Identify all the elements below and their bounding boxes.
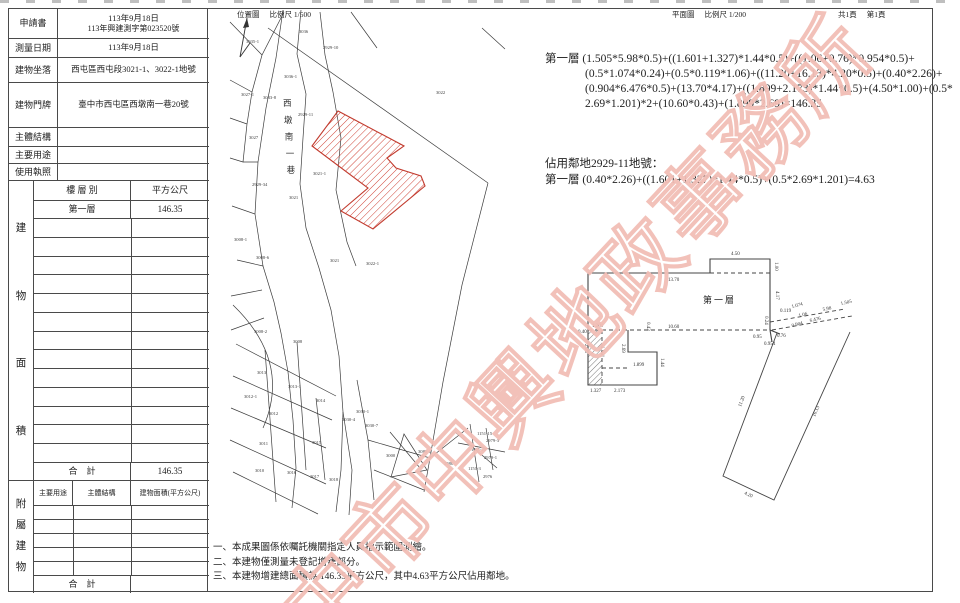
dimension-label: 0.40	[578, 330, 587, 335]
dimension-label: 0.76	[777, 334, 786, 339]
parcel-number: 3010	[255, 468, 265, 473]
parcel-number: 3035-1	[246, 39, 260, 44]
dimension-label: 13.70	[668, 278, 680, 283]
formula-line: (0.904*6.476*0.5)+(13.70*4.17)+((1.899+2…	[545, 82, 945, 97]
floor-plan-floor-label: 第一層	[703, 294, 736, 305]
parcel-number: 2979-1	[484, 455, 498, 460]
parcel-number: 1151-3	[468, 466, 482, 471]
dimension-label: 0.24	[763, 316, 768, 325]
parcel-number: 3008-1	[234, 237, 248, 242]
occupied-hatch-area	[588, 330, 602, 385]
parcel-number: 3013	[257, 370, 267, 375]
parcel-number: 3013-1	[288, 384, 302, 389]
parcel-numbers: 3035-130362929-103036-13027-13033-82929-…	[234, 29, 500, 482]
dimension-label: 2.173	[614, 389, 626, 394]
dimension-label: 0.954	[764, 342, 776, 347]
street-name-char: 巷	[287, 165, 296, 175]
dimension-label: 0.904	[791, 321, 804, 329]
occupation-computation: 佔用鄰地2929-11地號： 第一層 (0.40*2.26)+((1.601+1…	[545, 156, 945, 188]
dimension-label: 0.43	[645, 322, 650, 331]
dimension-label: 1.074	[791, 302, 804, 310]
parcel-number: 3022-1	[366, 261, 380, 266]
parcel-number: 3021	[289, 195, 299, 200]
parcel-number: 2976	[483, 474, 493, 479]
parcel-number: 3021-1	[313, 171, 327, 176]
parcel-number: 3022	[436, 90, 446, 95]
parcel-number: 3008-2	[254, 329, 268, 334]
dimension-label: 4.17	[774, 291, 779, 300]
street-name-vertical: 西墩南一巷	[283, 98, 296, 175]
parcel-number: 3017	[310, 474, 320, 479]
parcel-number: 3080-1	[418, 449, 432, 454]
dimension-label: 16.13	[812, 405, 821, 418]
parcel-number: 2929-10	[323, 45, 339, 50]
notes-block: 一、本成果圖係依囑託機關指定人員指示範圍測繪。二、本建物僅測量未登記增建部分。三…	[213, 541, 693, 585]
area-computation-formula: 第一層 (1.505*5.98*0.5)+((1.601+1.327)*1.44…	[545, 52, 945, 112]
parcel-number: 3033-8	[263, 95, 277, 100]
dimension-label: 1.899	[633, 363, 645, 368]
parcel-number: 3036-1	[284, 74, 298, 79]
occupation-title: 佔用鄰地2929-11地號：	[545, 156, 945, 172]
parcel-number: 3012	[269, 411, 279, 416]
parcel-number: 3030-4	[342, 417, 356, 422]
dimension-label: 5.98	[822, 306, 832, 313]
formula-line: (0.5*1.074*0.24)+(0.5*0.119*1.06)+((11.2…	[545, 67, 945, 82]
dimension-label: 1.44	[659, 358, 664, 367]
note-line: 一、本成果圖係依囑託機關指定人員指示範圍測繪。	[213, 541, 693, 556]
dimension-label: 1.601	[599, 346, 604, 358]
dimension-labels: 4.501.0013.704.1710.601.2010.402.261.601…	[578, 252, 853, 500]
parcel-number: 1151-20	[471, 447, 487, 452]
street-name-char: 墩	[284, 115, 293, 125]
parcel-number: 3036	[299, 29, 309, 34]
parcel-number: 2979-3	[486, 438, 500, 443]
parcel-number: 1151-15	[477, 431, 493, 436]
street-name-char: 西	[283, 98, 292, 108]
floor-plan-dashed	[588, 273, 852, 385]
dimension-label: 6.476	[809, 317, 822, 324]
formula-line: 2.69*1.201)*2+(10.60*0.43)+(1.899*2.69)=…	[545, 97, 945, 112]
dimension-label: 4.50	[731, 252, 740, 257]
note-line: 三、本建物增建總面積為 146.35平方公尺，其中4.63平方公尺佔用鄰地。	[213, 570, 693, 585]
parcel-number: 3014	[316, 398, 326, 403]
parcel-number: 3016	[287, 470, 297, 475]
parcel-number: 3027	[249, 135, 259, 140]
street-name-char: 一	[286, 148, 295, 158]
parcel-number: 3012-1	[244, 394, 258, 399]
parcel-number: 2929-11	[298, 112, 314, 117]
parcel-number: 3030-1	[356, 409, 370, 414]
parcel-number: 3021	[330, 258, 340, 263]
parcel-number: 3015	[312, 440, 322, 445]
dimension-label: 0.119	[780, 309, 792, 314]
parcel-number: 2980	[444, 461, 454, 466]
survey-result-sheet: 申請書 113年9月18日 113年興建測字第023520號 測量日期 113年…	[0, 0, 960, 603]
dimension-label: 1.201	[592, 324, 604, 329]
parcel-number: 3030-7	[365, 423, 379, 428]
parcel-number: 3008	[293, 339, 303, 344]
parcel-number: 3018	[329, 477, 339, 482]
note-line: 二、本建物僅測量未登記增建部分。	[213, 556, 693, 571]
parcel-number: 3027-1	[241, 92, 255, 97]
dimension-label: 1.00	[773, 262, 778, 271]
dimension-label: 4.20	[743, 491, 753, 499]
formula-line: 第一層 (1.505*5.98*0.5)+((1.601+1.327)*1.44…	[545, 52, 945, 67]
dimension-label: 1.327	[590, 389, 602, 394]
building-footprint-red	[312, 111, 425, 229]
occupation-line: 第一層 (0.40*2.26)+((1.601+1.327)*1.44*0.5)…	[545, 172, 945, 188]
dimension-label: 1.06	[798, 312, 808, 319]
parcel-number: 2929-34	[252, 182, 268, 187]
dimension-label: 10.60	[668, 325, 680, 330]
dimension-label: 1.505	[840, 300, 853, 307]
parcel-number: 3000	[386, 453, 396, 458]
dimension-label: 11.20	[738, 395, 747, 408]
dimension-label: 2.26	[583, 344, 588, 353]
parcel-number: 3011	[259, 441, 269, 446]
street-name-char: 南	[285, 132, 294, 142]
dimension-label: 2.69	[620, 344, 625, 353]
dimension-label: 0.95	[753, 335, 762, 340]
parcel-number: 3008-6	[256, 255, 270, 260]
